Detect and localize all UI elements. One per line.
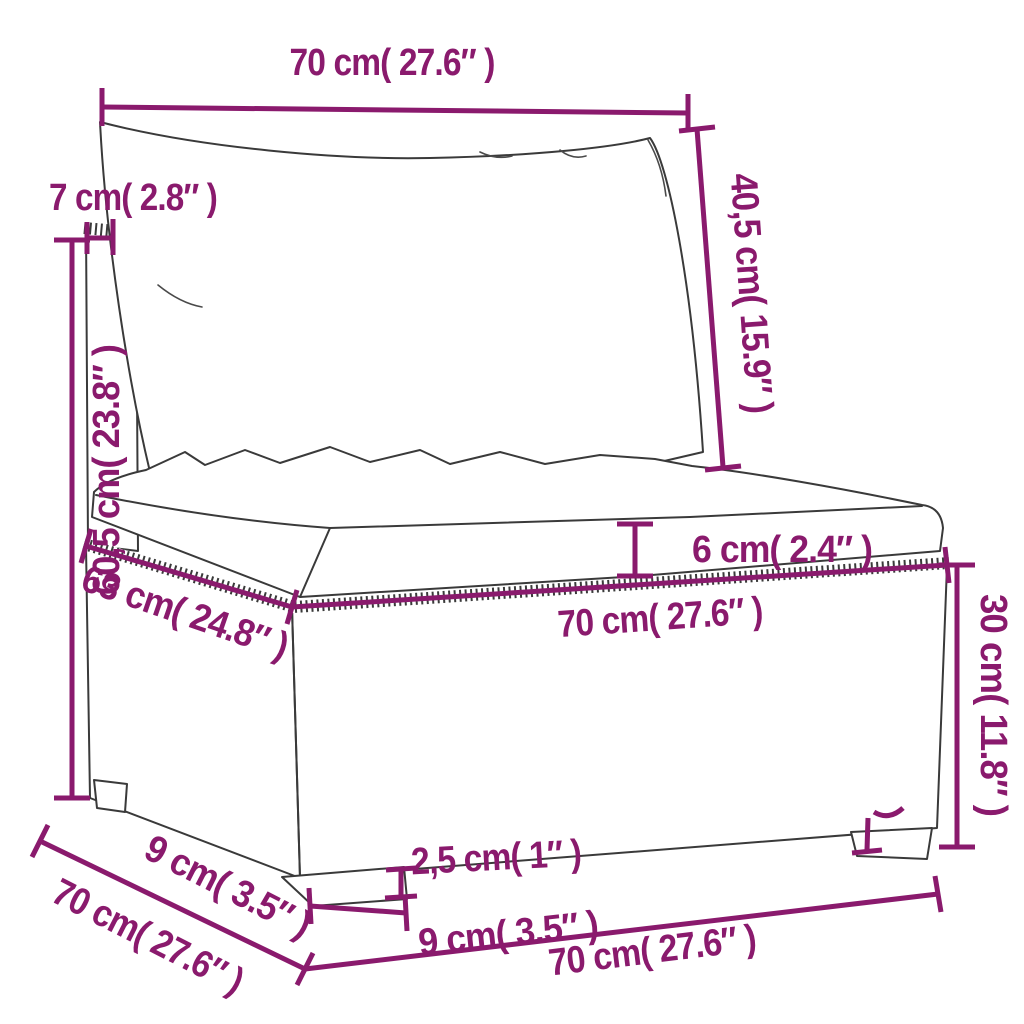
dim-tick [405, 895, 407, 931]
dimension-back-cushion-width: 70 cm( 27.6″ ) [102, 42, 688, 132]
seat-width-label: 70 cm( 27.6″ ) [556, 590, 763, 646]
back-left-leg [94, 780, 127, 812]
dim-tick [705, 466, 741, 470]
dim-tick [309, 888, 311, 924]
dimension-diagram-page: 70 cm( 27.6″ ) 7 cm( 2.8″ ) 40,5 cm( 15.… [0, 0, 1024, 1024]
seat-cushion-thickness-label: 6 cm( 2.4″ ) [692, 529, 872, 571]
dim-tick [385, 896, 417, 898]
dimension-leg-height: 2,5 cm( 1″ ) [385, 808, 903, 898]
dim-tick [679, 127, 715, 131]
back-cushion-height-label: 40,5 cm( 15.9″ ) [722, 172, 781, 414]
leg-height-leader-curve [874, 808, 903, 816]
dimension-base-height: 30 cm( 11.8″ ) [939, 565, 1014, 847]
back-panel-thickness-label: 7 cm( 2.8″ ) [49, 177, 217, 219]
sofa-dimension-diagram-svg: 70 cm( 27.6″ ) 7 cm( 2.8″ ) 40,5 cm( 15.… [0, 0, 1024, 1024]
dim-line [310, 906, 406, 913]
leg-height-label: 2,5 cm( 1″ ) [410, 833, 582, 884]
dim-tick [852, 850, 882, 853]
base-height-label: 30 cm( 11.8″ ) [972, 594, 1014, 816]
dimension-total-depth: 9 cm( 3.5″ ) 70 cm( 27.6″ ) [32, 825, 317, 1003]
dim-line [867, 818, 868, 850]
sofa-line-drawing [84, 122, 949, 906]
back-cushion-width-label: 70 cm( 27.6″ ) [290, 42, 495, 84]
dimension-total-height: 60,5 cm( 23.8″ ) [54, 240, 128, 798]
back-cushion [100, 122, 703, 472]
back-cushion-outline [100, 122, 703, 472]
dim-tick [935, 876, 941, 912]
dim-line [102, 107, 688, 113]
